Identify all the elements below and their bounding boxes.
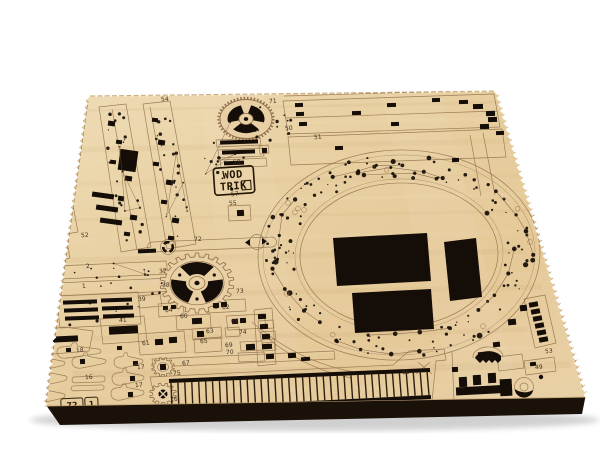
cut-slot: [258, 314, 266, 319]
star-dot: [267, 225, 270, 228]
star-dot: [276, 258, 279, 261]
cut-slot: [262, 148, 267, 153]
gear-75-hole: [160, 364, 166, 370]
star-dot: [367, 334, 370, 337]
cut-slot: [459, 377, 468, 387]
star-dot: [182, 198, 185, 201]
part-number-label: 67: [182, 360, 190, 368]
star-dot: [126, 303, 128, 305]
cut-slot: [213, 303, 219, 308]
star-dot: [123, 330, 125, 332]
star-dot: [155, 138, 158, 141]
star-dot: [475, 186, 478, 189]
star-dot: [335, 190, 338, 193]
star-dot: [164, 117, 167, 120]
star-dot: [485, 211, 490, 216]
star-dot: [169, 120, 171, 122]
cut-slot: [118, 196, 125, 202]
cut-slot: [459, 100, 468, 104]
star-dot: [393, 332, 398, 337]
star-dot: [138, 306, 139, 307]
ring-rect-cutout: [333, 233, 431, 286]
star-dot: [512, 247, 517, 252]
star-dot: [378, 336, 380, 338]
star-dot: [476, 308, 480, 312]
small-hole: [539, 375, 543, 379]
star-dot: [318, 320, 322, 324]
star-dot: [472, 339, 474, 341]
star-dot: [293, 252, 294, 253]
star-dot: [128, 161, 129, 162]
star-dot: [110, 282, 112, 284]
star-dot: [517, 230, 518, 231]
star-dot: [494, 189, 498, 193]
part-number-label: 52: [81, 232, 89, 240]
star-dot: [215, 163, 217, 165]
cut-slot: [264, 344, 272, 349]
cut-slot: [296, 112, 304, 116]
star-dot: [292, 268, 295, 271]
star-dot: [531, 253, 535, 257]
star-dot: [175, 186, 176, 187]
star-dot: [138, 230, 141, 233]
star-dot: [157, 135, 158, 136]
star-dot: [159, 132, 163, 136]
star-dot: [158, 143, 160, 145]
part-number-label: 70: [226, 349, 234, 357]
star-dot: [300, 215, 302, 217]
star-dot: [432, 341, 434, 343]
star-dot: [222, 178, 224, 180]
cut-slot: [260, 324, 268, 329]
star-dot: [96, 277, 98, 279]
star-dot: [463, 334, 465, 336]
star-dot: [305, 305, 307, 307]
star-dot: [446, 182, 448, 184]
star-dot: [254, 129, 257, 132]
star-dot: [313, 194, 316, 197]
star-dot: [436, 351, 438, 353]
star-dot: [157, 120, 160, 123]
star-dot: [400, 163, 404, 167]
gear-73-hole: [194, 281, 199, 285]
star-dot: [347, 160, 351, 164]
cut-slot: [37, 378, 42, 383]
star-dot: [487, 183, 490, 186]
cut-slot: [124, 232, 130, 237]
star-dot: [302, 309, 306, 313]
star-dot: [331, 175, 335, 179]
cut-slot: [130, 376, 135, 381]
star-dot: [124, 139, 125, 140]
star-dot: [477, 333, 483, 339]
star-dot: [299, 222, 302, 225]
star-dot: [491, 209, 493, 211]
star-dot: [123, 142, 125, 144]
part-number-label: 74: [239, 329, 247, 337]
star-dot: [514, 284, 516, 286]
cut-slot: [301, 357, 310, 362]
part-number-label: 57: [231, 191, 239, 199]
star-dot: [517, 245, 520, 248]
star-dot: [265, 259, 268, 262]
part-number-label: 59: [233, 159, 241, 167]
star-dot: [278, 234, 281, 237]
star-dot: [422, 353, 425, 356]
star-dot: [440, 326, 443, 329]
part-number-label: 73: [236, 288, 244, 296]
ring-rect-cutout: [352, 289, 434, 333]
gear-73-pinhole: [213, 273, 216, 276]
cut-slot: [262, 334, 270, 339]
star-dot: [417, 349, 422, 354]
star-dot: [310, 183, 313, 186]
cut-slot: [169, 337, 177, 343]
star-dot: [151, 292, 154, 295]
star-dot: [285, 251, 287, 253]
star-dot: [349, 176, 352, 179]
star-dot: [300, 188, 302, 190]
cut-slot: [240, 318, 246, 323]
cut-slot: [37, 395, 42, 400]
star-dot: [289, 239, 293, 243]
cut-slot: [452, 158, 459, 162]
cut-slot: [488, 117, 497, 122]
star-dot: [514, 213, 517, 216]
cut-slot: [66, 348, 71, 352]
star-dot: [283, 287, 287, 291]
star-dot: [367, 352, 369, 354]
star-dot: [242, 156, 244, 158]
cut-slot: [391, 122, 399, 126]
star-dot: [296, 293, 298, 295]
star-dot: [339, 338, 341, 340]
cut-slot: [387, 103, 396, 107]
star-dot: [108, 129, 109, 130]
star-dot: [286, 197, 288, 199]
star-dot: [304, 203, 307, 206]
part-number-label: 18: [76, 347, 84, 355]
star-dot: [320, 191, 322, 193]
star-dot: [493, 294, 497, 298]
part-number-label: 16: [85, 374, 93, 382]
star-dot: [327, 184, 328, 185]
star-dot: [148, 270, 150, 272]
star-dot: [161, 145, 162, 146]
part-number-label: 60: [180, 313, 188, 321]
star-dot: [338, 326, 340, 328]
star-dot: [172, 143, 174, 145]
cut-slot: [197, 331, 204, 337]
star-dot: [275, 120, 278, 123]
star-dot: [508, 252, 509, 253]
star-dot: [122, 116, 125, 119]
star-dot: [433, 347, 435, 349]
star-dot: [297, 318, 300, 321]
star-dot: [289, 309, 291, 311]
star-dot: [463, 173, 467, 177]
star-dot: [90, 268, 92, 270]
star-dot: [177, 172, 180, 175]
star-dot: [68, 323, 71, 326]
cut-slot: [488, 373, 497, 383]
part-number-label: 37: [159, 268, 167, 276]
star-dot: [158, 291, 161, 294]
star-dot: [391, 172, 394, 175]
star-dot: [306, 182, 309, 185]
part-number-label: 40: [40, 336, 48, 344]
star-dot: [100, 285, 102, 287]
cut-slot: [295, 103, 303, 107]
star-dot: [499, 308, 501, 310]
star-dot: [257, 130, 259, 132]
star-dot: [124, 135, 127, 138]
star-dot: [352, 340, 355, 343]
comb-slat: [192, 382, 193, 407]
star-dot: [106, 147, 109, 150]
star-dot: [274, 257, 277, 260]
part-number-label: 66: [402, 369, 410, 377]
star-dot: [344, 163, 347, 166]
star-dot: [448, 326, 452, 330]
star-dot: [280, 244, 282, 246]
star-dot: [367, 339, 370, 342]
star-dot: [456, 322, 457, 323]
cut-slot: [493, 342, 500, 348]
star-dot: [120, 204, 122, 206]
part-number-label: 41: [119, 317, 127, 325]
cut-slot: [496, 131, 504, 135]
star-dot: [473, 188, 475, 190]
star-dot: [487, 331, 489, 333]
part-number-label: 63: [206, 328, 214, 336]
star-dot: [389, 166, 392, 169]
part-number-label: 76: [170, 396, 178, 404]
star-dot: [409, 339, 411, 341]
star-dot: [422, 170, 426, 174]
cut-slot: [117, 346, 122, 350]
star-dot: [48, 310, 50, 312]
star-dot: [109, 161, 111, 163]
star-dot: [362, 173, 366, 177]
star-dot: [259, 106, 261, 108]
star-dot: [271, 215, 276, 220]
cut-slot: [473, 375, 482, 385]
star-dot: [288, 132, 291, 135]
cut-slot: [40, 360, 45, 365]
star-dot: [494, 201, 497, 204]
cut-slot: [168, 236, 174, 241]
cut-slot: [128, 392, 133, 397]
star-dot: [255, 135, 258, 138]
cut-slot: [432, 98, 440, 102]
star-dot: [381, 176, 383, 178]
part-number-label: 17: [135, 382, 143, 390]
cut-slot: [335, 146, 343, 150]
star-dot: [113, 268, 114, 269]
star-dot: [118, 112, 121, 115]
star-dot: [503, 284, 506, 287]
star-dot: [468, 321, 469, 322]
star-dot: [375, 345, 377, 347]
star-dot: [521, 249, 523, 251]
star-dot: [286, 216, 289, 219]
star-dot: [511, 272, 513, 274]
wheel-hub-hole: [244, 117, 248, 121]
star-dot: [266, 242, 269, 245]
part-number-label: 55: [229, 200, 237, 208]
star-dot: [467, 315, 469, 317]
cut-slot: [480, 124, 489, 129]
star-dot: [74, 272, 76, 274]
star-dot: [286, 262, 287, 263]
star-dot: [411, 176, 415, 180]
star-dot: [129, 287, 132, 290]
star-dot: [163, 154, 165, 156]
star-dot: [335, 184, 337, 186]
star-dot: [413, 172, 416, 175]
star-dot: [524, 229, 529, 234]
star-dot: [172, 153, 175, 156]
part-number-label: 64: [165, 307, 173, 315]
star-dot: [108, 112, 112, 116]
gear-73-pinhole: [195, 297, 198, 300]
part-number-label: 54: [161, 96, 169, 104]
star-dot: [530, 258, 535, 263]
cut-slot: [352, 111, 361, 115]
star-dot: [116, 310, 117, 311]
star-dot: [391, 159, 396, 164]
star-dot: [216, 171, 219, 174]
star-dot: [381, 347, 384, 350]
star-dot: [177, 236, 178, 237]
star-dot: [304, 183, 306, 185]
part-number-label: 68: [231, 318, 239, 326]
star-dot: [287, 120, 289, 122]
star-dot: [356, 329, 357, 330]
star-dot: [344, 175, 347, 178]
cut-slot: [288, 353, 296, 359]
star-dot: [441, 176, 445, 180]
star-dot: [506, 271, 510, 275]
star-dot: [159, 168, 162, 171]
part-number-label: 61: [142, 340, 150, 348]
cut-slot: [237, 210, 244, 216]
star-dot: [280, 213, 284, 217]
star-dot: [473, 335, 476, 338]
star-dot: [126, 239, 128, 241]
cut-slot: [473, 104, 483, 109]
star-dot: [507, 284, 510, 287]
star-dot: [525, 259, 528, 262]
cut-slot: [486, 111, 495, 116]
part-number-label: 49: [535, 364, 543, 372]
cut-slot: [80, 359, 85, 364]
star-dot: [88, 301, 91, 304]
cut-slot: [192, 318, 202, 325]
gear-73-pinhole: [178, 273, 181, 276]
star-dot: [458, 179, 460, 181]
star-dot: [455, 324, 457, 326]
star-dot: [276, 126, 278, 128]
cut-slot: [155, 339, 163, 345]
star-dot: [389, 352, 394, 357]
star-dot: [278, 247, 280, 249]
cut-slot: [246, 344, 255, 350]
part-number-label: 50: [285, 125, 293, 133]
star-dot: [115, 194, 118, 197]
part-number-label: 53: [545, 348, 553, 356]
cut-slot: [109, 325, 138, 335]
part-number-label: 1: [82, 283, 86, 290]
star-dot: [95, 319, 98, 322]
star-dot: [217, 156, 221, 160]
cut-slot: [500, 379, 513, 397]
cut-slot: [452, 367, 458, 372]
cut-slot: [520, 305, 528, 312]
star-dot: [289, 306, 290, 307]
star-dot: [505, 212, 506, 213]
star-dot: [271, 273, 274, 276]
star-dot: [334, 339, 338, 343]
part-number-label: 75: [173, 370, 181, 378]
part-number-label: 62: [222, 304, 230, 312]
star-dot: [118, 201, 121, 204]
cut-slot: [138, 249, 156, 254]
star-dot: [473, 178, 476, 181]
cut-slot: [508, 319, 517, 326]
star-dot: [507, 242, 510, 245]
star-dot: [417, 330, 422, 335]
cut-slot: [299, 122, 307, 126]
star-dot: [504, 264, 507, 267]
part-number-label: 65: [200, 338, 208, 346]
ring-rect-cutout: [444, 238, 482, 301]
star-dot: [448, 168, 451, 171]
part-number-label: 71: [269, 98, 277, 106]
star-dot: [313, 304, 315, 306]
star-dot: [445, 332, 448, 335]
cut-slot: [153, 162, 159, 167]
star-dot: [433, 161, 436, 164]
part-number-label: 72: [194, 236, 202, 244]
star-dot: [375, 164, 378, 167]
star-dot: [229, 121, 231, 123]
star-dot: [299, 298, 302, 301]
photo-canvas: WOD TRIK 72 1 71545051595755527237213839…: [0, 0, 600, 464]
star-dot: [204, 158, 205, 159]
star-dot: [450, 344, 452, 346]
star-dot: [141, 223, 144, 226]
star-dot: [366, 157, 368, 159]
star-dot: [173, 182, 175, 184]
star-dot: [293, 197, 297, 201]
star-dot: [398, 163, 400, 165]
part-number-label: 51: [314, 134, 322, 142]
star-dot: [289, 119, 292, 122]
star-dot: [273, 249, 276, 252]
star-dot: [329, 171, 332, 174]
star-dot: [317, 178, 320, 181]
star-dot: [344, 181, 347, 184]
star-dot: [516, 280, 518, 282]
plywood-sheet-photo: WOD TRIK 72 1 71545051595755527237213839…: [0, 0, 600, 464]
star-dot: [427, 156, 432, 161]
star-dot: [369, 336, 370, 337]
star-dot: [116, 180, 118, 182]
star-dot: [269, 139, 272, 142]
star-dot: [272, 262, 275, 265]
